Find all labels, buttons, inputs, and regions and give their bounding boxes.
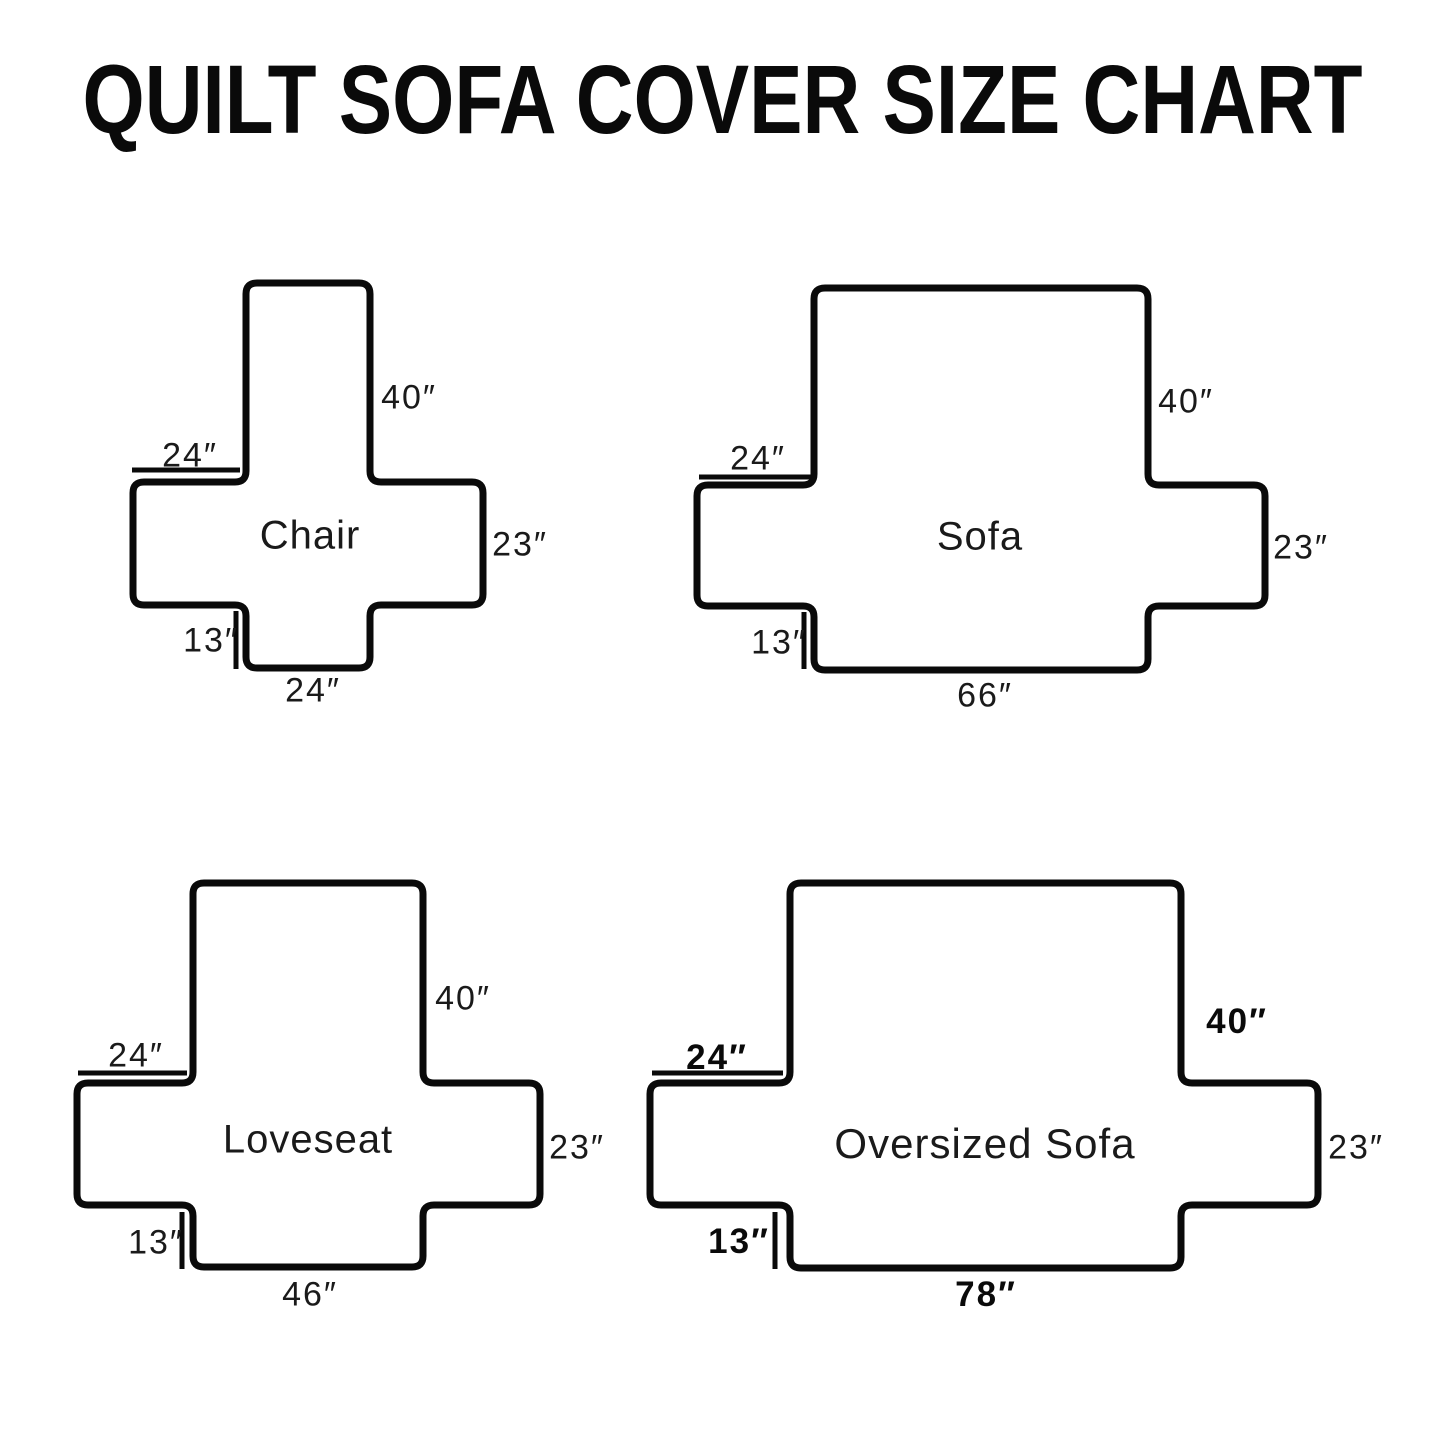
loveseat-back-height-label: 40″ (435, 980, 491, 1019)
sofa-arm-width-label: 24″ (730, 440, 786, 479)
chair-arm-width-label: 24″ (162, 437, 218, 476)
oversized-sofa-bottom-width-label: 78″ (955, 1275, 1017, 1315)
oversized-sofa-skirt-height-label: 13″ (708, 1222, 770, 1262)
loveseat-bottom-width-label: 46″ (282, 1276, 338, 1315)
oversized-sofa-name-label: Oversized Sofa (834, 1120, 1135, 1168)
size-chart-page: QUILT SOFA COVER SIZE CHART 40″ 24″ Chai… (0, 0, 1445, 1435)
sofa-back-height-label: 40″ (1158, 383, 1214, 422)
sofa-bottom-width-label: 66″ (957, 677, 1013, 716)
sofa-name-label: Sofa (937, 515, 1023, 560)
oversized-sofa-side-height-label: 23″ (1328, 1129, 1384, 1168)
chair-bottom-width-label: 24″ (285, 672, 341, 711)
chair-skirt-height-label: 13″ (183, 622, 239, 661)
chair-cover-outline (133, 283, 483, 668)
loveseat-arm-width-label: 24″ (108, 1037, 164, 1076)
chair-name-label: Chair (260, 514, 361, 559)
oversized-sofa-arm-width-label: 24″ (686, 1038, 748, 1078)
sofa-side-height-label: 23″ (1273, 529, 1329, 568)
oversized-sofa-back-height-label: 40″ (1206, 1002, 1268, 1042)
cover-outlines-canvas (0, 0, 1445, 1435)
loveseat-name-label: Loveseat (223, 1118, 393, 1163)
loveseat-skirt-height-label: 13″ (128, 1224, 184, 1263)
chair-back-height-label: 40″ (381, 379, 437, 418)
sofa-skirt-height-label: 13″ (751, 624, 807, 663)
chair-side-height-label: 23″ (492, 526, 548, 565)
loveseat-side-height-label: 23″ (549, 1129, 605, 1168)
